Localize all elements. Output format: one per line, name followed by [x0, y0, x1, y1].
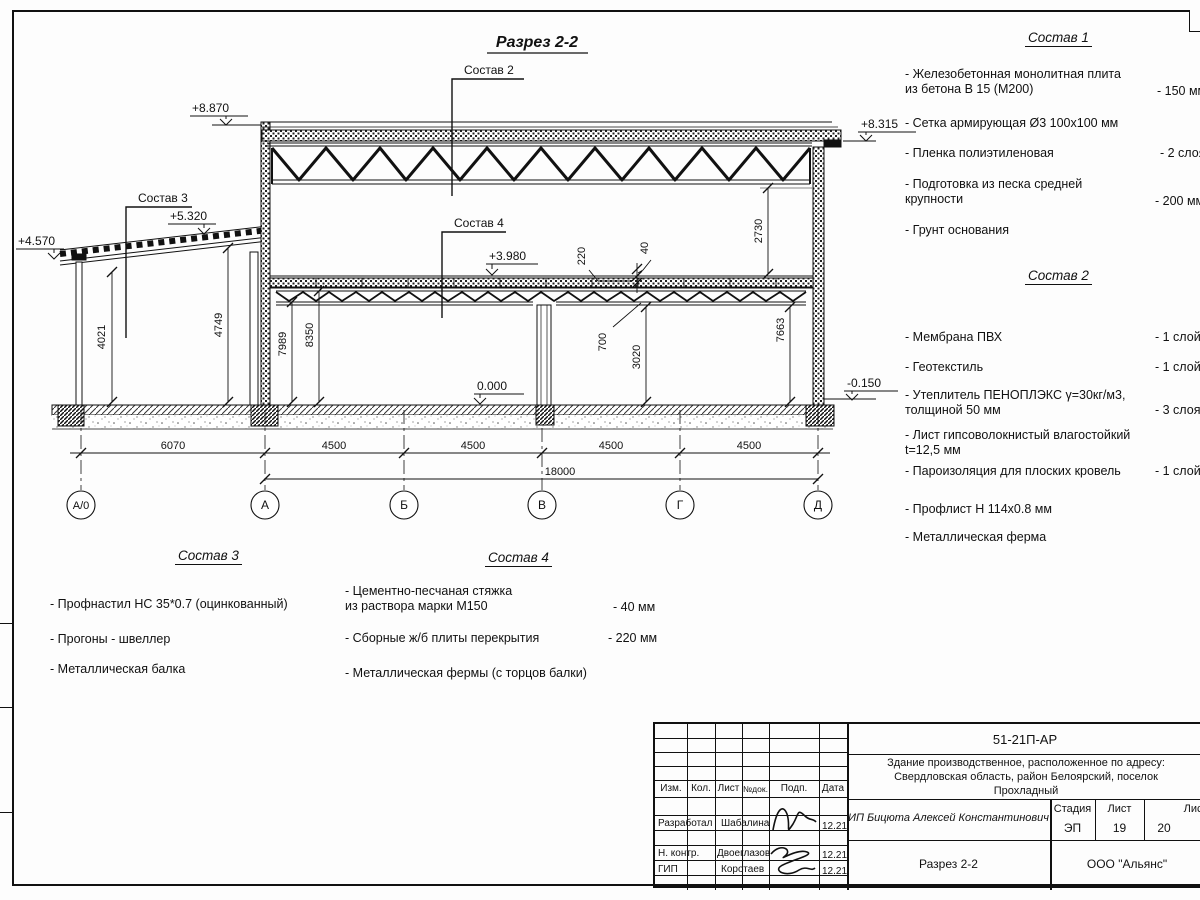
- list-item: - Сборные ж/б плиты перекрытия: [345, 631, 539, 646]
- list-item: - Металлическая ферма: [905, 530, 1046, 545]
- elev-roof-left: +8.870: [192, 101, 229, 115]
- elev-annex-top: +5.320: [170, 209, 207, 223]
- list-sostav2: Состав 2 - Мембрана ПВХ - 1 слой - Геоте…: [905, 268, 1200, 553]
- section-drawing: Разрез 2-2 Состав 2 Состав 3 Состав 4 +8…: [0, 0, 940, 545]
- list-item: - Мембрана ПВХ: [905, 330, 1002, 345]
- axis-d: Д: [814, 498, 822, 512]
- tb-header-izm: Изм.: [655, 783, 687, 794]
- list-item: - Профнастил НС 35*0.7 (оцинкованный): [50, 597, 288, 612]
- elev-ground: -0.150: [847, 376, 881, 390]
- tb-header-data: Дата: [819, 783, 847, 794]
- tb-role: Разработал: [658, 818, 712, 829]
- main-right-wall: [813, 147, 824, 405]
- elev-annex-eave: +4.570: [18, 234, 55, 248]
- drawing-title: Разрез 2-2: [496, 34, 578, 51]
- axis-g: Г: [677, 498, 684, 512]
- tb-name: Шабалина: [721, 818, 769, 829]
- sheet-frame-notch-v: [1189, 10, 1190, 31]
- list-item: - Цементно-песчаная стяжка из раствора м…: [345, 584, 512, 614]
- list-item: - Металлическая фермы (с торцов балки): [345, 666, 587, 681]
- list-item-value: - 2 слоя: [1160, 146, 1200, 161]
- elev-floor2: +3.980: [489, 249, 526, 263]
- annex-right-post: [250, 252, 258, 405]
- tb-name: Двоеглазов: [717, 848, 770, 859]
- dim-700: 700: [597, 333, 609, 351]
- floor-slab: [52, 405, 833, 415]
- tb-object: Здание производственное, расположенное п…: [849, 756, 1200, 798]
- list-sostav4: Состав 4 - Цементно-песчаная стяжка из р…: [345, 550, 685, 690]
- axis-bubbles: [67, 491, 832, 519]
- annex: [60, 226, 268, 405]
- ground-layer: [52, 415, 833, 429]
- tb-date: 12.21: [822, 850, 847, 861]
- dim-4021: 4021: [96, 325, 108, 349]
- dim-7663: 7663: [775, 318, 787, 342]
- list-item: - Геотекстиль: [905, 360, 983, 375]
- binding-tick: [0, 623, 13, 624]
- dim-3020: 3020: [631, 345, 643, 369]
- axis-labels: А/0 А Б В Г Д: [73, 498, 822, 512]
- tb-role: Н. контр.: [658, 848, 699, 859]
- list-item: - Утеплитель ПЕНОПЛЭКС γ=30кг/м3, толщин…: [905, 388, 1125, 418]
- tb-name: Коротаев: [721, 864, 764, 875]
- list-title: Состав 4: [485, 550, 552, 567]
- tb-header-ndok: №док.: [742, 784, 769, 794]
- list-item: - Прогоны - швеллер: [50, 632, 170, 647]
- tb-doc-number: 51-21П-АР: [847, 732, 1200, 747]
- list-item: - Профлист Н 114х0.8 мм: [905, 502, 1052, 517]
- binding-tick: [0, 812, 13, 813]
- tb-stage-label: Стадия: [1050, 803, 1095, 815]
- list-item: - Грунт основания: [905, 223, 1009, 238]
- list-item: - Лист гипсоволокнистый влагостойкий t=1…: [905, 428, 1130, 458]
- callout-sostav4: Состав 4: [454, 216, 504, 230]
- tb-header-kol: Кол.: [687, 783, 715, 794]
- annex-left-wall: [76, 262, 82, 405]
- callout-sostav3: Состав 3: [138, 191, 188, 205]
- list-item-value: - 1 слой: [1155, 360, 1200, 375]
- title-block: Изм. Кол. Лист №док. Подп. Дата Разработ…: [653, 722, 1200, 888]
- callout-sostav2: Состав 2: [464, 63, 514, 77]
- footing: [806, 405, 834, 426]
- footing: [58, 405, 84, 426]
- dim-2730: 2730: [753, 219, 765, 243]
- precast-slabs: [270, 278, 813, 287]
- tb-company: ИП Бицюта Алексей Константинович: [847, 812, 1050, 824]
- tb-date: 12.21: [822, 821, 847, 832]
- signature: [767, 840, 819, 884]
- elev-floor0: 0.000: [477, 379, 507, 393]
- axis-a: А: [261, 498, 269, 512]
- tb-sheets-value: 20: [1144, 821, 1184, 835]
- list-item-value: - 1 слой: [1155, 464, 1200, 479]
- dim-18000: 18000: [545, 466, 576, 478]
- dim-6070: 6070: [161, 440, 185, 452]
- dim-4500: 4500: [322, 440, 346, 452]
- drawing-texts: Разрез 2-2 Состав 2 Состав 3 Состав 4 +8…: [18, 34, 898, 512]
- binding-tick: [0, 707, 13, 708]
- tb-sheet-label: Лист: [1095, 803, 1144, 815]
- list-item-value: - 1 слой: [1155, 330, 1200, 345]
- tb-stage-value: ЭП: [1050, 821, 1095, 835]
- list-item: - Металлическая балка: [50, 662, 185, 677]
- tb-role: ГИП: [658, 864, 678, 875]
- axis-b: Б: [400, 498, 408, 512]
- tb-sheet-title: Разрез 2-2: [847, 857, 1050, 871]
- list-item: - Сетка армирующая Ø3 100х100 мм: [905, 116, 1118, 131]
- annex-wall-cap: [72, 254, 86, 260]
- tb-date: 12.21: [822, 866, 847, 877]
- dim-220: 220: [576, 247, 588, 265]
- dim-4749: 4749: [213, 313, 225, 337]
- footing: [251, 405, 278, 426]
- list-title: Состав 3: [175, 548, 242, 565]
- dim-4500: 4500: [461, 440, 485, 452]
- elevation-marks: [16, 116, 916, 404]
- list-item: - Пароизоляция для плоских кровель: [905, 464, 1121, 479]
- axis-a0: А/0: [73, 500, 90, 512]
- list-item: - Подготовка из песка средней крупности: [905, 177, 1082, 207]
- annex-roof-deck: [60, 230, 268, 254]
- tb-sheets-label: Листов: [1144, 803, 1200, 815]
- list-item: - Железобетонная монолитная плита из бет…: [905, 67, 1121, 97]
- signature: [767, 800, 819, 838]
- tb-sheet-value: 19: [1095, 821, 1144, 835]
- floor-truss: [276, 292, 806, 301]
- column: [537, 305, 551, 405]
- list-title: Состав 1: [1025, 30, 1092, 47]
- tb-header-list: Лист: [715, 783, 742, 794]
- list-item-value: - 150 мм: [1157, 84, 1200, 99]
- dim-4500: 4500: [599, 440, 623, 452]
- main-roof: [262, 122, 841, 184]
- building-section: [16, 79, 916, 519]
- roof-deck-layers: [262, 130, 841, 141]
- dim-4500: 4500: [737, 440, 761, 452]
- elev-roof-right: +8.315: [861, 117, 898, 131]
- list-item: - Пленка полиэтиленовая: [905, 146, 1054, 161]
- dim-8350: 8350: [304, 323, 316, 347]
- dimension-lines: [70, 183, 830, 484]
- list-sostav3: Состав 3 - Профнастил НС 35*0.7 (оцинков…: [50, 548, 360, 683]
- axis-v: В: [538, 498, 546, 512]
- list-title: Состав 2: [1025, 268, 1092, 285]
- mid-floor: [270, 276, 813, 305]
- footing: [536, 405, 554, 425]
- list-item-value: - 40 мм: [613, 600, 655, 615]
- list-item-value: - 220 мм: [608, 631, 657, 646]
- tb-org: ООО "Альянс": [1052, 857, 1200, 871]
- tb-header-podp: Подп.: [769, 783, 819, 794]
- dim-7989: 7989: [277, 332, 289, 356]
- drawing-sheet: { "drawing": { "title": "Разрез 2-2", "c…: [0, 0, 1200, 900]
- roof-overhang-cap: [824, 140, 841, 147]
- main-left-wall: [261, 122, 270, 405]
- list-item-value: - 3 слоя: [1155, 403, 1200, 418]
- roof-truss: [272, 148, 810, 180]
- dim-40: 40: [639, 242, 651, 254]
- list-item-value: - 200 мм: [1155, 194, 1200, 209]
- list-sostav1: Состав 1 - Железобетонная монолитная пли…: [905, 30, 1200, 245]
